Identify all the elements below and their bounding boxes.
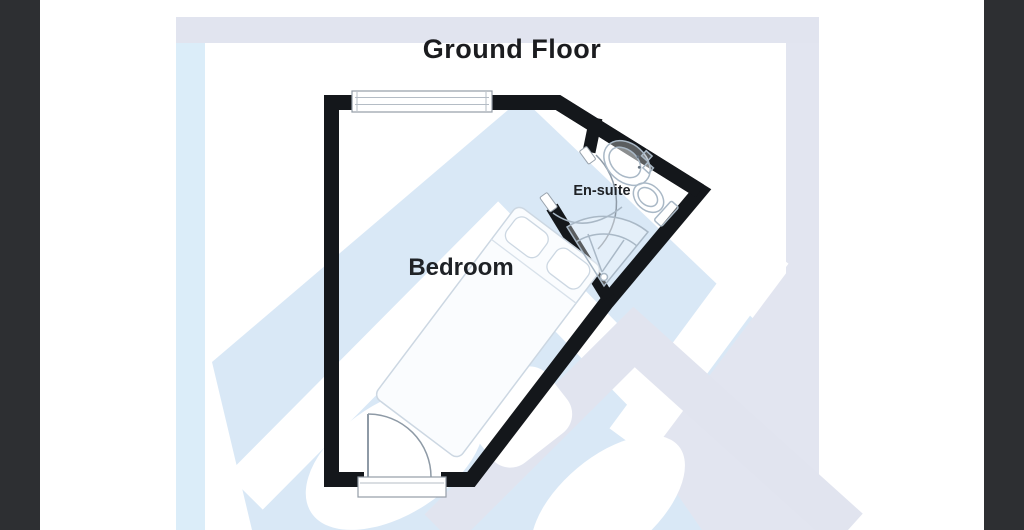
right-letterbox-bar [984,0,1024,530]
watermark-left-band [176,43,205,530]
door-threshold [358,477,446,497]
left-letterbox-bar [0,0,40,530]
ensuite-stub-wall [589,118,596,152]
page-title: Ground Floor [423,34,601,64]
room-label-bedroom: Bedroom [408,254,513,281]
floorplan-page: Ground Floor Bedroom En-suite [0,0,1024,530]
room-label-ensuite: En-suite [573,183,630,199]
floorplan-image: Ground Floor Bedroom En-suite [0,0,1024,530]
window-top [352,91,492,112]
